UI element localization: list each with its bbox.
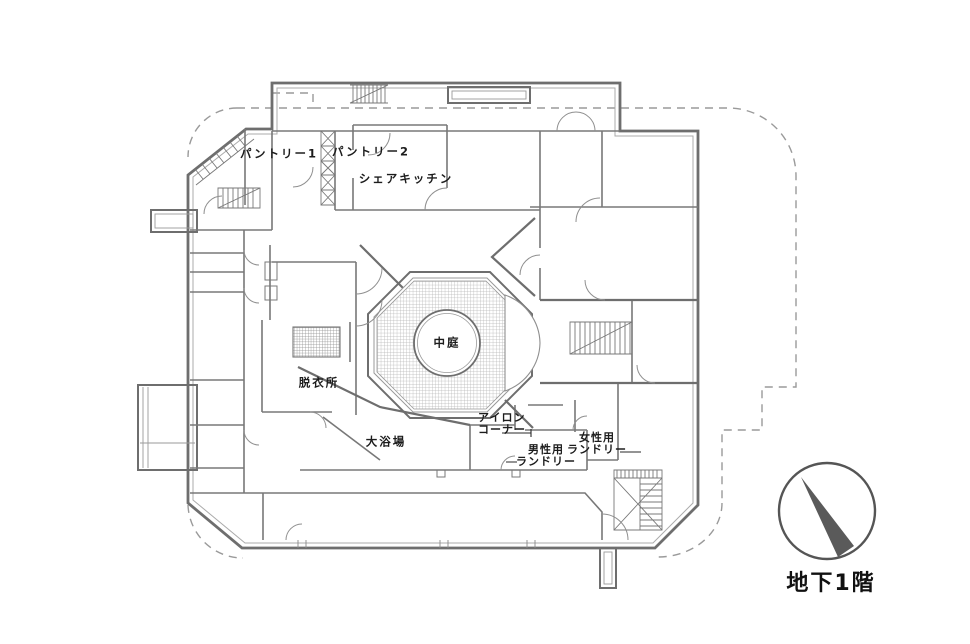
bay-window-glazing [140,91,612,584]
stair-east [570,322,632,354]
room-label-courtyard: 中庭 [434,337,461,350]
courtyard-east-doors [505,295,540,391]
room-label-womens-laundry-line2: ランドリー [567,444,627,456]
room-label-womens-laundry: 女性用 ランドリー [567,432,627,457]
floor-title: 地下1階 [786,565,875,597]
stair-southeast [614,470,662,530]
room-label-pantry1: パントリー1 [240,148,318,161]
room-label-pantry2: パントリー2 [332,146,410,159]
north-arrow-icon [779,463,875,559]
room-label-dressing-room: 脱衣所 [299,377,340,390]
room-label-iron-corner: アイロン コーナー [478,412,526,437]
pantry-shelving [321,131,335,205]
floor-plan-drawing [0,0,970,644]
room-label-mens-laundry-line2: ランドリー [516,456,576,468]
room-label-large-bath: 大浴場 [366,436,407,449]
dressing-room-lockers [293,327,340,357]
room-label-share-kitchen: シェアキッチン [359,173,454,186]
floorplan-page: パントリー1 パントリー2 シェアキッチン 中庭 脱衣所 大浴場 アイロン コー… [0,0,970,644]
room-label-iron-corner-line2: コーナー [478,424,526,436]
